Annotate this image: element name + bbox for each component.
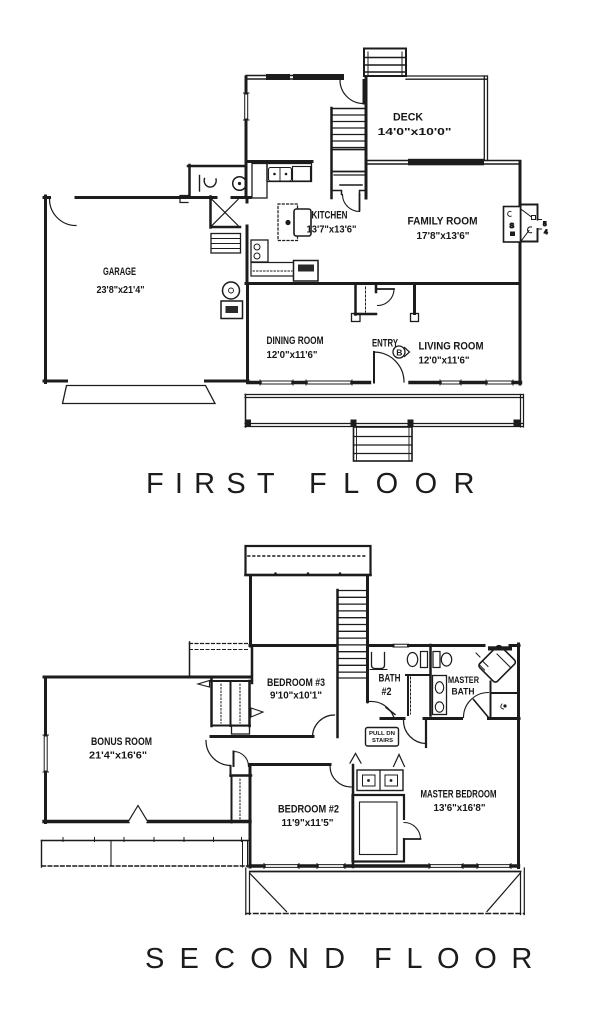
svg-text:BEDROOM #2: BEDROOM #2 xyxy=(278,804,339,816)
svg-text:LIVING ROOM: LIVING ROOM xyxy=(419,341,484,353)
svg-text:SECOND: SECOND xyxy=(145,943,360,975)
svg-text:#2: #2 xyxy=(382,686,392,698)
svg-text:KITCHEN: KITCHEN xyxy=(312,210,348,222)
svg-text:FIRST: FIRST xyxy=(146,468,286,500)
svg-text:13'7"x13'6": 13'7"x13'6" xyxy=(307,224,357,236)
svg-text:MASTER: MASTER xyxy=(448,675,479,685)
svg-text:FLOOR: FLOOR xyxy=(374,943,547,975)
svg-text:STAIRS: STAIRS xyxy=(372,738,394,744)
svg-text:FAMILY ROOM: FAMILY ROOM xyxy=(408,216,478,228)
svg-text:11'9"x11'5": 11'9"x11'5" xyxy=(282,817,334,829)
svg-text:DINING ROOM: DINING ROOM xyxy=(267,335,324,347)
svg-text:23'8"x21'4": 23'8"x21'4" xyxy=(97,284,145,296)
svg-text:13'6"x16'8": 13'6"x16'8" xyxy=(434,802,486,814)
svg-text:MASTER BEDROOM: MASTER BEDROOM xyxy=(421,789,497,801)
svg-text:GARAGE: GARAGE xyxy=(103,266,136,278)
svg-text:21'4"x16'6": 21'4"x16'6" xyxy=(89,750,147,762)
svg-text:17'8"x13'6": 17'8"x13'6" xyxy=(417,230,470,242)
svg-text:DECK: DECK xyxy=(393,112,423,124)
svg-text:BONUS ROOM: BONUS ROOM xyxy=(91,736,152,748)
svg-text:BATH: BATH xyxy=(452,687,475,697)
svg-text:12'0"x11'6": 12'0"x11'6" xyxy=(267,349,318,361)
svg-text:B: B xyxy=(396,348,402,358)
svg-text:4: 4 xyxy=(544,229,548,236)
svg-text:BEDROOM #3: BEDROOM #3 xyxy=(267,677,325,689)
svg-text:PULL DN: PULL DN xyxy=(369,731,395,737)
svg-text:S: S xyxy=(510,223,515,230)
svg-text:FLOOR: FLOOR xyxy=(309,468,491,500)
svg-text:BATH: BATH xyxy=(379,673,401,685)
svg-text:14'0"x10'0": 14'0"x10'0" xyxy=(378,126,452,138)
svg-text:5: 5 xyxy=(543,221,547,228)
svg-text:9'10"x10'1": 9'10"x10'1" xyxy=(270,690,322,702)
svg-text:12'0"x11'6": 12'0"x11'6" xyxy=(419,355,470,367)
